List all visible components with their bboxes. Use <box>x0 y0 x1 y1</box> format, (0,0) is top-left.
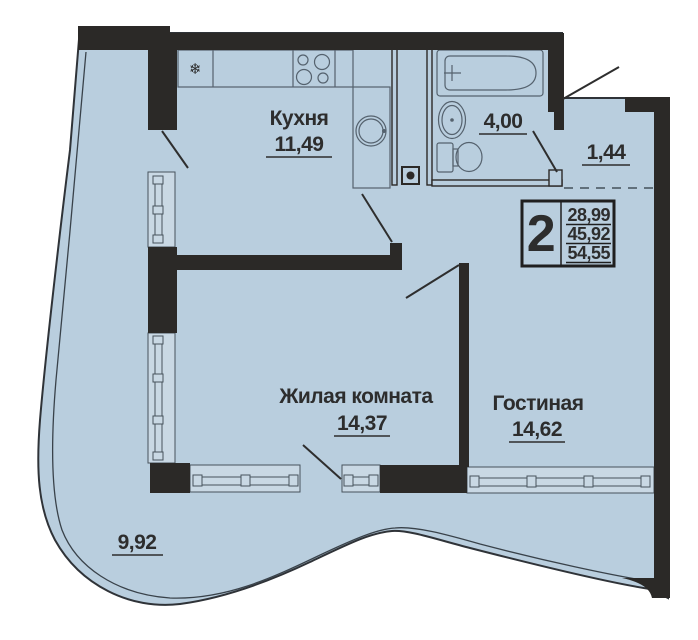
wall-bathroom-east <box>548 33 564 112</box>
kitchen-area: 11,49 <box>275 133 324 156</box>
wall-west-middle <box>148 247 177 333</box>
bathroom-door-jamb <box>549 170 562 186</box>
wall-west-upper <box>148 50 177 130</box>
west-window-upper <box>148 172 175 247</box>
bedroom-area: 14,37 <box>337 412 387 435</box>
badge-room-count: 2 <box>527 205 555 263</box>
lounge-area: 14,62 <box>512 418 562 441</box>
shaft-wall-left <box>392 48 397 185</box>
wall-bedroom-east <box>459 263 469 467</box>
wall-top <box>168 33 562 50</box>
lounge-label: Гостиная <box>493 392 584 415</box>
balcony-area: 9,92 <box>118 531 157 554</box>
floor-plan-page: ❄ <box>0 0 698 640</box>
entrance-door-leaf <box>563 67 619 99</box>
shaft-wall-right <box>427 48 432 185</box>
vent-duct-icon <box>402 167 419 184</box>
fridge-snowflake-icon: ❄ <box>189 61 201 78</box>
south-window-bedroom-right <box>342 465 380 492</box>
wall-kitchen-south <box>173 255 402 270</box>
badge-area-2: 45,92 <box>567 224 610 244</box>
bedroom-label: Жилая комната <box>278 385 433 408</box>
wall-south-center-block <box>380 465 467 493</box>
entry-area: 1,44 <box>587 141 627 164</box>
badge-area-1: 28,99 <box>567 205 610 225</box>
south-window-bedroom-left <box>190 465 300 492</box>
wall-east <box>654 97 670 598</box>
wall-bathroom-east-stub <box>554 112 564 130</box>
wall-west-bottom-block <box>150 463 190 493</box>
wall-top-left-bar <box>78 26 170 50</box>
floor-plan-svg: ❄ <box>0 0 698 640</box>
wall-door-stub <box>390 243 402 270</box>
west-window-lower <box>148 333 175 463</box>
info-badge: 2 28,99 45,92 54,55 <box>522 201 614 266</box>
south-window-lounge <box>467 467 654 493</box>
kitchen-label: Кухня <box>270 107 329 130</box>
bathroom-area: 4,00 <box>484 110 523 133</box>
badge-area-3: 54,55 <box>567 243 610 263</box>
bathroom-south-wall <box>432 180 562 186</box>
